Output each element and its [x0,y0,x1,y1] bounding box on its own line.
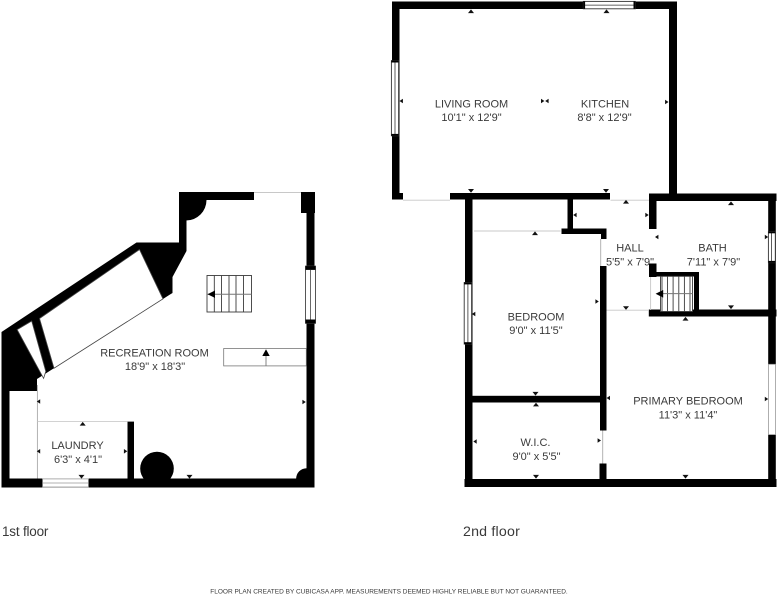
svg-text:7'11" x 7'9": 7'11" x 7'9" [687,256,740,268]
svg-text:9'0" x 5'5": 9'0" x 5'5" [512,451,560,463]
svg-text:18'9" x 18'3": 18'9" x 18'3" [125,361,185,373]
svg-text:LIVING ROOM: LIVING ROOM [435,99,508,111]
svg-text:5'5" x 7'9": 5'5" x 7'9" [606,256,654,268]
svg-text:11'3" x 11'4": 11'3" x 11'4" [659,410,718,422]
svg-text:HALL: HALL [616,242,644,254]
svg-text:1st floor: 1st floor [2,524,49,539]
svg-text:6'3" x 4'1": 6'3" x 4'1" [54,454,102,466]
svg-text:8'8" x 12'9": 8'8" x 12'9" [577,112,631,124]
svg-text:BEDROOM: BEDROOM [508,312,565,324]
svg-text:LAUNDRY: LAUNDRY [51,440,104,452]
svg-text:RECREATION ROOM: RECREATION ROOM [100,348,209,360]
svg-text:BATH: BATH [698,242,727,254]
svg-text:W.I.C.: W.I.C. [521,437,551,449]
svg-text:KITCHEN: KITCHEN [581,99,629,111]
svg-text:2nd floor: 2nd floor [463,524,520,540]
svg-text:PRIMARY BEDROOM: PRIMARY BEDROOM [633,396,743,408]
svg-text:10'1" x 12'9": 10'1" x 12'9" [441,112,501,124]
svg-text:FLOOR PLAN CREATED BY CUBICASA: FLOOR PLAN CREATED BY CUBICASA APP. MEAS… [210,589,568,596]
svg-text:9'0" x 11'5": 9'0" x 11'5" [509,325,562,337]
